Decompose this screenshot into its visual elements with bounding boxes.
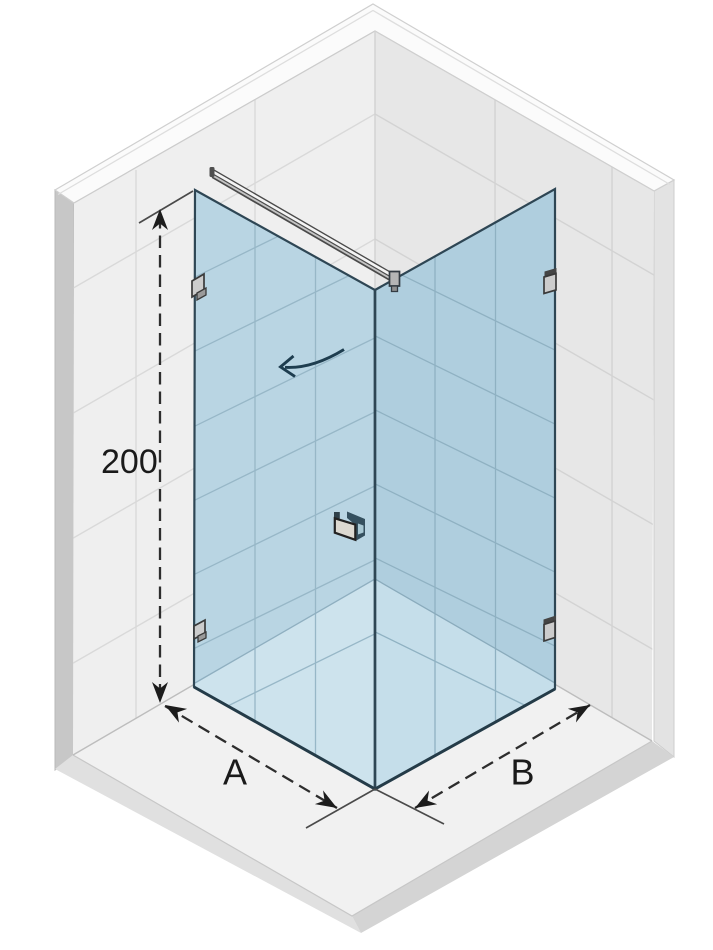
svg-text:200: 200 bbox=[101, 443, 158, 481]
svg-text:A: A bbox=[223, 752, 247, 793]
svg-text:B: B bbox=[511, 752, 535, 793]
